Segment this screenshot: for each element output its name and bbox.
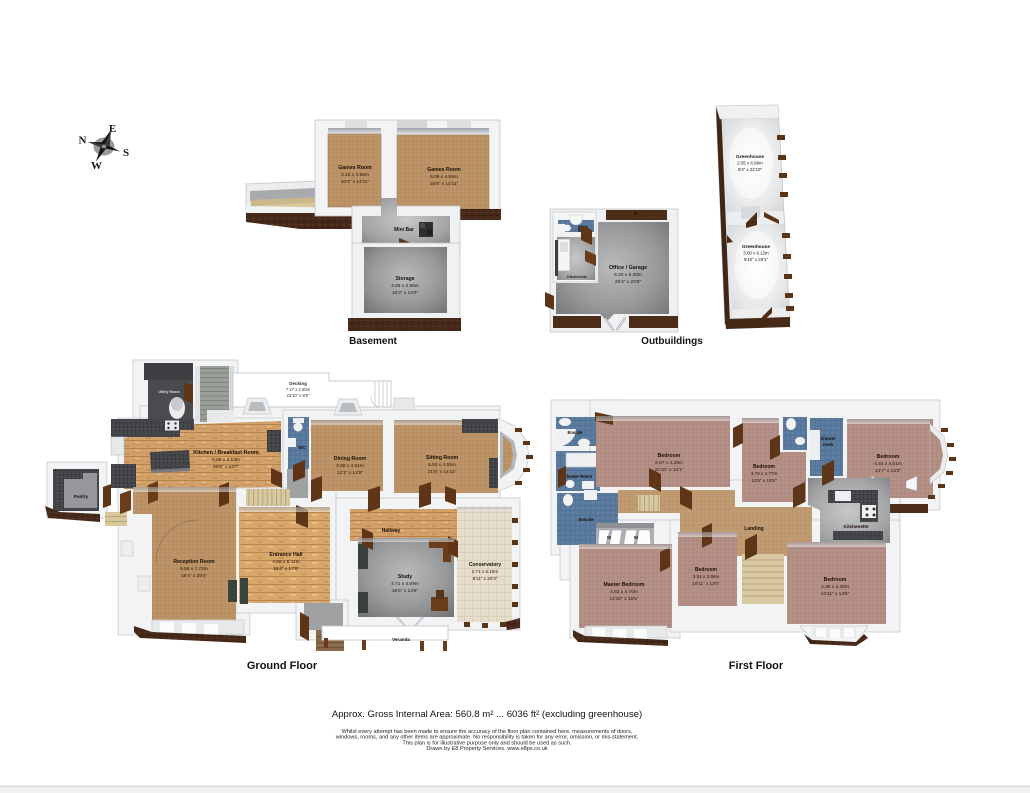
svg-text:Bedroom: Bedroom	[658, 453, 681, 459]
svg-text:Storage: Storage	[395, 276, 414, 282]
svg-text:6.97 x 4.28m: 6.97 x 4.28m	[655, 460, 683, 466]
svg-text:9'10" x 20'1": 9'10" x 20'1"	[744, 257, 769, 262]
svg-text:5.58 x 7.72m: 5.58 x 7.72m	[180, 566, 208, 572]
svg-text:Games Room: Games Room	[427, 167, 461, 173]
svg-text:Reception Room: Reception Room	[173, 559, 215, 565]
svg-text:3.15 x 4.55m: 3.15 x 4.55m	[341, 172, 369, 178]
svg-text:Office / Garage: Office / Garage	[609, 265, 647, 271]
svg-text:Greenhouse: Greenhouse	[736, 154, 764, 160]
svg-text:10'4" x 14'11": 10'4" x 14'11"	[341, 179, 370, 185]
svg-text:3.68 x 4.61m: 3.68 x 4.61m	[336, 463, 364, 469]
svg-text:Landing: Landing	[744, 526, 763, 532]
svg-text:Pantry: Pantry	[74, 494, 89, 499]
svg-text:Greenhouse: Greenhouse	[742, 244, 770, 250]
svg-text:3.79 x 4.77m: 3.79 x 4.77m	[751, 471, 778, 476]
svg-text:16'8" x 14'11": 16'8" x 14'11"	[430, 181, 459, 187]
svg-text:Outbuildings: Outbuildings	[641, 336, 703, 347]
svg-text:N: N	[79, 135, 87, 147]
svg-text:6.20 x 6.30m: 6.20 x 6.30m	[614, 272, 642, 278]
svg-text:23'10" x 8'6": 23'10" x 8'6"	[287, 393, 310, 398]
svg-text:Shower Room: Shower Room	[564, 474, 592, 479]
svg-text:Entrance Hall: Entrance Hall	[269, 552, 303, 558]
svg-text:4.53 x 4.70m: 4.53 x 4.70m	[610, 589, 638, 595]
svg-text:18'4" x 25'4": 18'4" x 25'4"	[181, 573, 208, 579]
svg-text:Ensuite: Ensuite	[567, 430, 583, 435]
svg-text:W: W	[91, 160, 102, 172]
svg-text:26'8" x 13'7": 26'8" x 13'7"	[213, 464, 240, 470]
svg-text:Ensuite: Ensuite	[578, 517, 594, 522]
svg-text:8'11" x 20'3": 8'11" x 20'3"	[473, 576, 498, 581]
svg-text:room: room	[823, 442, 834, 447]
svg-text:Utility Room: Utility Room	[158, 390, 179, 394]
svg-text:Study: Study	[398, 574, 413, 580]
svg-text:4.71 x 4.09m: 4.71 x 4.09m	[391, 581, 419, 587]
svg-text:WC: WC	[298, 445, 306, 450]
svg-text:Veranda: Veranda	[392, 637, 410, 642]
svg-text:10'11" x 13'0": 10'11" x 13'0"	[692, 581, 720, 586]
svg-text:14'11" x 14'5": 14'11" x 14'5"	[821, 591, 850, 597]
svg-text:12'5" x 15'8": 12'5" x 15'8"	[751, 478, 777, 483]
svg-text:Ground Floor: Ground Floor	[247, 660, 318, 672]
svg-text:14'7" x 13'2": 14'7" x 13'2"	[875, 468, 902, 474]
svg-text:Shower: Shower	[820, 436, 835, 441]
svg-text:First Floor: First Floor	[729, 660, 784, 672]
svg-text:Bedroom: Bedroom	[824, 577, 847, 583]
svg-text:Approx. Gross Internal Area: 5: Approx. Gross Internal Area: 560.8 m² ..…	[332, 709, 642, 720]
svg-text:Decking: Decking	[289, 381, 307, 386]
svg-text:Conservatory: Conservatory	[469, 562, 501, 568]
svg-text:4.38 x 4.40m: 4.38 x 4.40m	[821, 584, 849, 590]
svg-text:S: S	[123, 147, 129, 159]
svg-text:Dining Room: Dining Room	[334, 456, 367, 462]
svg-text:14'10" x 15'5": 14'10" x 15'5"	[610, 596, 639, 602]
svg-text:Sitting Room: Sitting Room	[426, 455, 459, 461]
svg-text:2.71 x 6.18m: 2.71 x 6.18m	[472, 569, 499, 574]
svg-text:Kitchenette: Kitchenette	[567, 275, 587, 279]
svg-text:15'6" x 13'5": 15'6" x 13'5"	[392, 588, 419, 594]
svg-text:8'4" x 22'10": 8'4" x 22'10"	[738, 167, 763, 172]
svg-text:7.27 x 2.60m: 7.27 x 2.60m	[286, 387, 311, 392]
svg-text:4.68 x 5.11m: 4.68 x 5.11m	[272, 559, 299, 565]
svg-text:15'4" x 17'0": 15'4" x 17'0"	[273, 566, 300, 572]
svg-text:4.44 x 4.01m: 4.44 x 4.01m	[874, 461, 902, 467]
svg-text:Basement: Basement	[349, 336, 397, 347]
svg-text:Bedroom: Bedroom	[877, 454, 900, 460]
svg-text:Drawn by E8 Property Services.: Drawn by E8 Property Services. www.e8ps.…	[426, 746, 547, 752]
svg-text:9.65 x 4.13m: 9.65 x 4.13m	[212, 457, 240, 463]
svg-text:Hallway: Hallway	[382, 528, 401, 534]
svg-text:Bedroom: Bedroom	[695, 567, 718, 573]
svg-text:6.52 x 4.55m: 6.52 x 4.55m	[428, 462, 456, 468]
svg-text:15'3" x 13'0": 15'3" x 13'0"	[392, 290, 419, 296]
svg-text:5.09 x 4.55m: 5.09 x 4.55m	[430, 174, 458, 180]
svg-text:21'5" x 14'11": 21'5" x 14'11"	[428, 469, 457, 475]
svg-text:12'1" x 12'9": 12'1" x 12'9"	[337, 470, 364, 476]
svg-text:3.34 x 3.96m: 3.34 x 3.96m	[693, 574, 720, 579]
svg-text:3.00 x 6.12m: 3.00 x 6.12m	[743, 251, 769, 256]
svg-text:Bedroom: Bedroom	[753, 464, 776, 470]
svg-text:Mini Bar: Mini Bar	[394, 227, 414, 233]
svg-text:2.55 x 6.96m: 2.55 x 6.96m	[737, 161, 763, 166]
svg-text:Kitchenette: Kitchenette	[843, 524, 868, 529]
svg-text:20'4" x 20'8": 20'4" x 20'8"	[615, 279, 642, 285]
svg-text:Kitchen / Breakfast Room: Kitchen / Breakfast Room	[193, 450, 259, 456]
svg-text:E: E	[109, 123, 116, 135]
svg-text:22'10" x 14'1": 22'10" x 14'1"	[655, 467, 684, 473]
svg-text:4.65 x 3.96m: 4.65 x 3.96m	[391, 283, 419, 289]
svg-text:Games Room: Games Room	[338, 165, 372, 171]
svg-text:Master Bedroom: Master Bedroom	[604, 582, 645, 588]
